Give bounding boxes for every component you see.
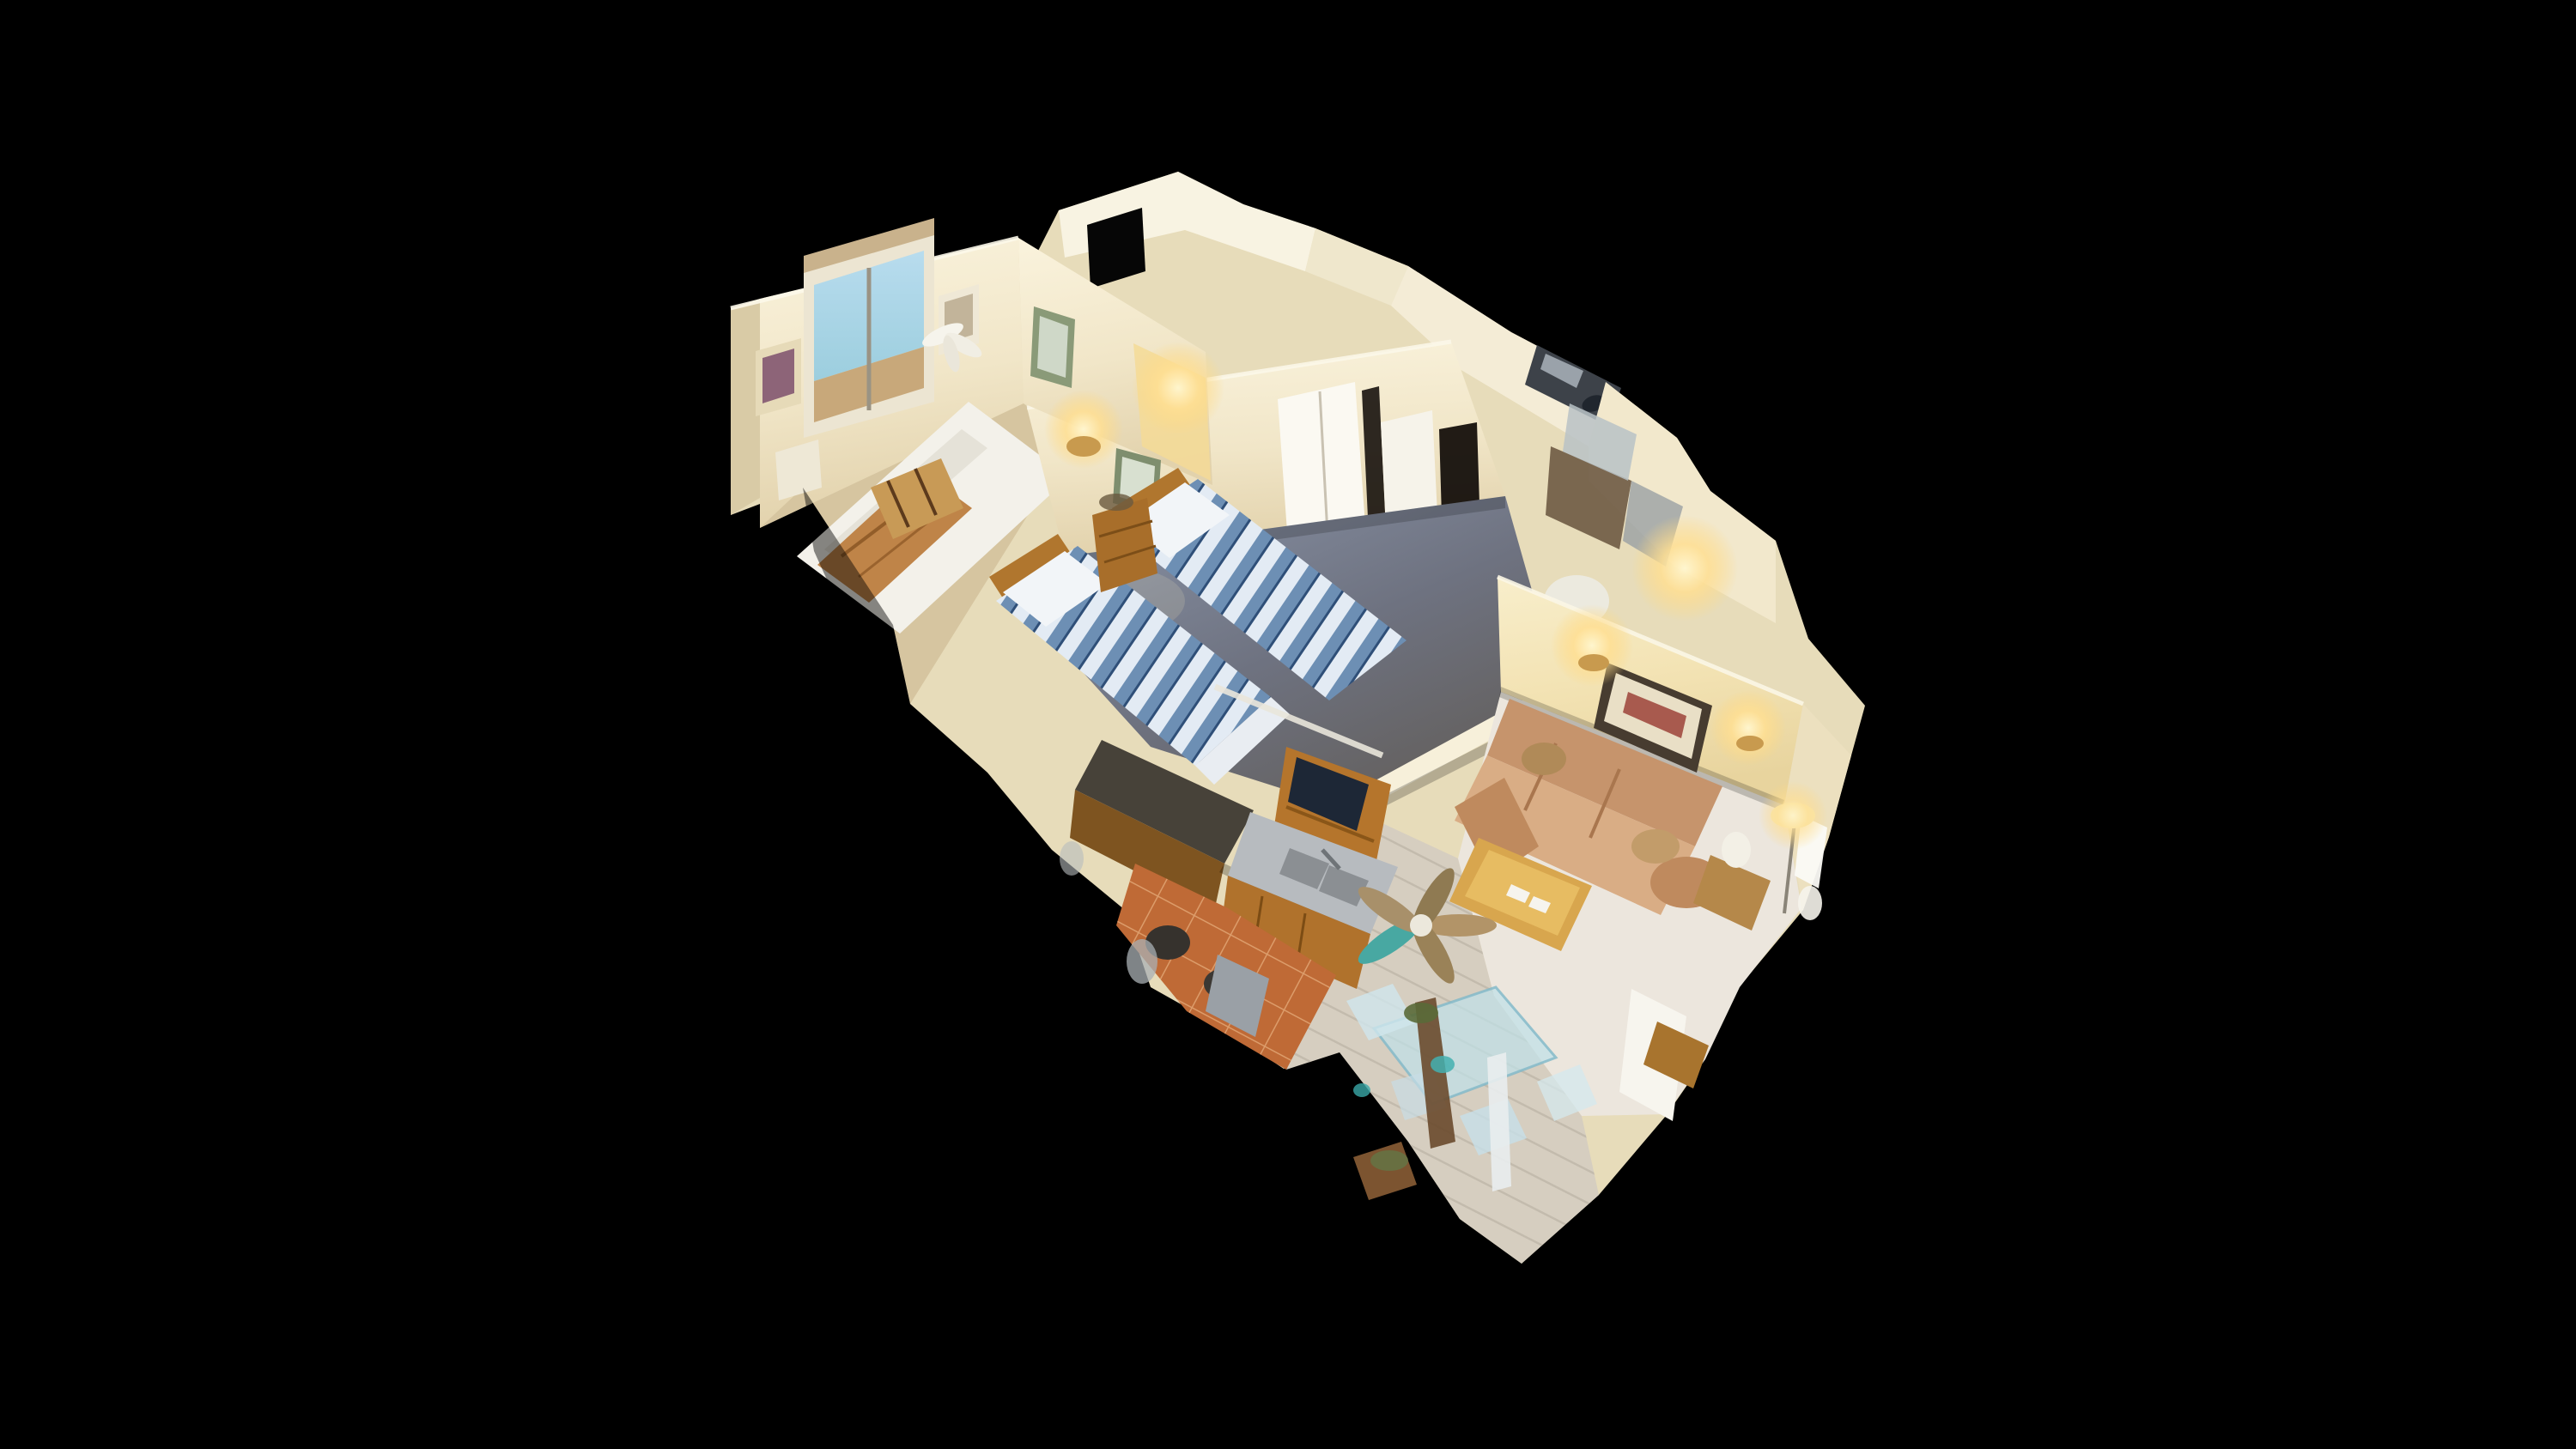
living-sconce2-shade (1736, 736, 1764, 751)
bedroom1-left-wall (731, 299, 760, 515)
dollhouse-viewport[interactable] (0, 0, 2576, 1449)
floor-lamp-glow (1759, 781, 1827, 850)
divider-picture-art (1037, 316, 1068, 378)
plant-foliage (1404, 1003, 1438, 1023)
living-sconce-glow (1551, 604, 1633, 687)
dollhouse-model (0, 0, 2576, 1449)
scan-fragment-steel (1060, 841, 1084, 876)
bedroom2-sconce-shade (1066, 436, 1101, 457)
ceiling-fan-hub (1410, 914, 1432, 937)
nightstand-clutter (1099, 494, 1133, 511)
divider-sconce-glow (1132, 342, 1224, 434)
french-door-fragment (1798, 886, 1822, 920)
living-sconce-shade (1578, 654, 1609, 671)
scan-fragment-steel (1127, 939, 1157, 984)
teal-scan-fragment (1431, 1056, 1455, 1073)
bathroom-lamp-glow (1631, 515, 1738, 621)
entry-bench2-wood (1353, 1142, 1417, 1200)
sofa-pillow (1631, 829, 1680, 864)
teal-scan-fragment (1353, 1083, 1370, 1097)
plant-foliage (1370, 1150, 1408, 1171)
screen: { "meta": { "description": "3D dollhouse… (0, 0, 2576, 1449)
sofa-pillow (1522, 743, 1566, 775)
table-lamp (1722, 832, 1751, 868)
bedroom2-sconce-glow (1044, 390, 1123, 469)
living-sconce2-glow (1710, 690, 1786, 766)
